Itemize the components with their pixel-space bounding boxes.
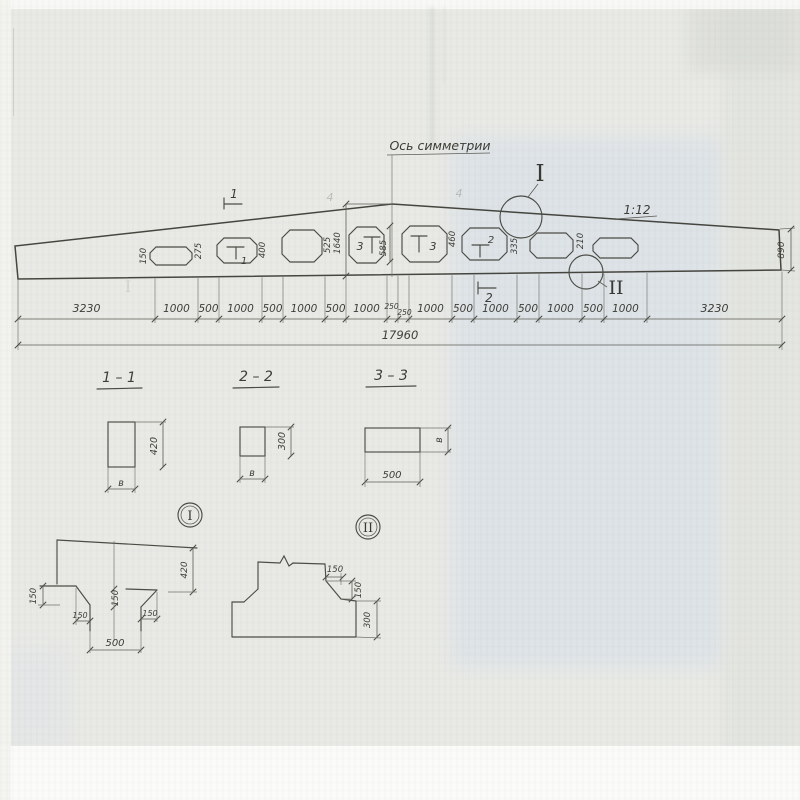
faint-scan-marks: 4 4 I [125,187,463,296]
detail-1-left-dim: 150 [29,588,39,604]
detail-1-mid-dim: 150 [111,590,121,606]
cut-1-hole-label: 1 [241,256,247,267]
section-cut-3-right: 3 [411,236,437,253]
detail-1-ref-label: I [535,161,544,187]
section-3-height: в [434,437,445,443]
chain-dim-label: 1000 [227,303,254,315]
end-height-label: 890 [777,241,787,258]
chain-dim-label: 250 [397,308,412,317]
section-view-2-2: 2 – 2 300 в [233,369,294,483]
dimension-ticks [15,201,794,653]
web-height-label: 1640 [333,232,343,254]
detail-2-side-dim: 150 [354,582,364,598]
chain-dim-label: 1000 [163,303,190,315]
scanned-blueprint-page: Ось симметрии 1:12 890 1 [0,0,800,800]
beam-lightening-holes [150,226,638,265]
section-1-title: 1 – 1 [102,370,136,386]
faint-mark: 4 [456,187,463,200]
detail-1-chamfer-right-dim: 150 [142,609,157,618]
detail-2-title: II [363,521,373,536]
section-3-width: 500 [382,470,401,481]
lightening-hole [150,247,192,265]
lightening-hole [530,233,573,258]
lightening-hole [462,228,507,260]
chain-dim-label: 500 [453,303,473,315]
section-cut-2-below: 2 [478,282,496,305]
web-height-label: 210 [576,233,586,249]
slope-callout: 1:12 [616,203,657,219]
symmetry-axis-label: Ось симметрии [389,138,490,153]
detail-2-height-dim: 300 [363,612,373,628]
web-height-label: 585 [379,240,389,256]
chain-dim-label: 1000 [547,303,574,315]
section-1-width: в [118,478,124,489]
section-3-title: 3 – 3 [374,368,408,384]
detail-1-height-dim: 420 [180,561,190,578]
section-cut-1-in-hole: 1 [227,247,247,267]
detail-1-title: I [187,509,192,524]
web-height-label: 460 [448,231,458,247]
chain-dim-label: 500 [262,303,282,315]
chain-dim-label: 1000 [482,303,509,315]
section-view-1-1: 1 – 1 420 в [97,370,166,493]
chain-dim-label: 3230 [73,302,101,315]
web-height-label: 150 [139,248,149,264]
faint-mark: 4 [327,191,334,204]
total-length-label: 17960 [382,328,419,342]
chain-dim-label: 500 [325,303,345,315]
chain-dim-label: 3230 [701,302,729,315]
chain-dim-label: 500 [518,303,538,315]
chain-dim-label: 500 [198,303,218,315]
lightening-hole [217,238,257,263]
ghost-mark: I [125,277,131,296]
detail-view-2: II 150 150 300 [232,515,381,638]
web-height-label: 275 [194,243,204,259]
section-2-width: в [249,468,255,479]
dimension-chain: 17960 3230100050010005001000500100025025… [18,271,782,350]
slope-label: 1:12 [624,203,651,217]
cut-1-label: 1 [230,187,238,201]
chain-dim-label: 1000 [291,303,318,315]
beam-outline [15,204,781,279]
detail-2-ref-label: II [608,277,623,299]
detail-circle-1: I [500,161,545,238]
detail-2-top-dim: 150 [327,565,343,575]
cut-2-hole-label: 2 [488,235,494,246]
detail-view-1: I 150 150 150 150 500 42 [29,503,202,653]
lightening-hole [593,238,638,258]
detail-1-bottom-dim: 500 [105,638,124,649]
detail-circle-2: II [569,255,624,299]
web-height-label: 525 [323,237,333,253]
section-1-height: 420 [149,437,160,455]
chain-dim-label: 500 [583,303,603,315]
chain-dim-label: 1000 [417,303,444,315]
section-cut-3-left: 3 [357,237,381,253]
section-2-height: 300 [277,432,288,450]
chain-dim-label: 1000 [612,303,639,315]
web-height-label: 335 [510,238,520,254]
web-height-label: 400 [258,242,268,258]
lightening-hole [402,226,447,262]
section-cut-1-above: 1 [224,187,242,209]
detail-1-chamfer-left-dim: 150 [72,611,87,620]
cut-3-right-label: 3 [430,240,437,253]
cut-3-left-label: 3 [357,240,364,253]
section-view-3-3: 3 – 3 в 500 [365,368,451,487]
section-2-title: 2 – 2 [239,369,273,385]
chain-dim-label: 1000 [353,303,380,315]
section-cut-2-in-hole: 2 [472,235,494,257]
beam-elevation-drawing: Ось симметрии 1:12 890 1 [0,0,800,800]
lightening-hole [282,230,322,262]
